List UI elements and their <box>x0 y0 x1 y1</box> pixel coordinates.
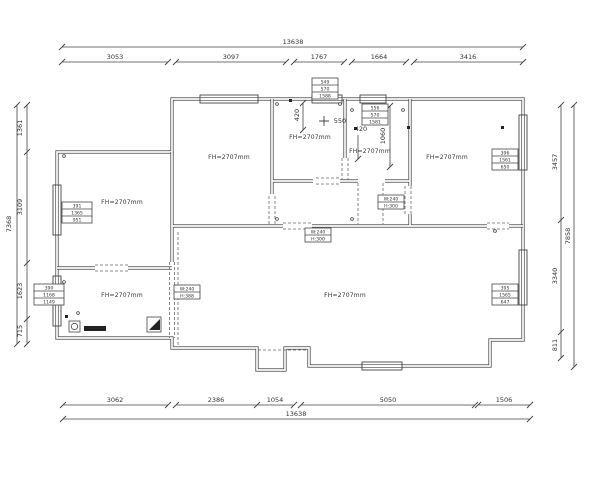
room-label-top-left: FH=2707mm <box>208 154 250 161</box>
dimension-bottom: 3062 2386 1054 5050 1506 13638 <box>60 396 533 422</box>
dim-seg: 2386 <box>208 396 225 404</box>
dim-box-row: 390 <box>45 286 54 292</box>
dim-seg: 1664 <box>371 53 388 61</box>
beam-box-row: W:240 <box>311 230 326 236</box>
dim-seg: 5050 <box>380 396 397 404</box>
window-icon <box>362 362 402 370</box>
dim-box-stack: 390 1168 1149 <box>34 284 64 306</box>
dim-seg: 715 <box>16 325 24 337</box>
inline-dim-1060: 1060 <box>379 128 387 145</box>
dim-box-row: 1149 <box>43 300 55 306</box>
room-label-bottom-left: FH=2707mm <box>101 292 143 299</box>
dimension-right: 3457 3340 811 7858 <box>551 102 577 370</box>
dim-box-row: 1561 <box>499 158 511 164</box>
dim-seg: 3109 <box>16 199 24 216</box>
beam-box: W:240 H:388 <box>174 285 200 300</box>
room-label-top-middle: FH=2707mm <box>289 134 331 141</box>
room-label-middle-small: FH=2707mm <box>349 148 391 155</box>
dim-total-left: 7368 <box>5 216 13 233</box>
window-icon <box>519 250 527 305</box>
dim-box-row: 556 <box>371 106 380 112</box>
dim-box-row: 570 <box>371 113 380 119</box>
dim-box-row: 650 <box>501 165 510 171</box>
dim-box-row: 1168 <box>43 293 55 299</box>
dim-box-stack: 556 570 1581 <box>362 104 388 126</box>
interior-walls <box>57 99 523 268</box>
beam-box: W:240 H:300 <box>305 228 331 243</box>
dim-box-row: 395 <box>501 286 510 292</box>
dim-seg: 1054 <box>267 396 284 404</box>
floor-plan-canvas: 13638 3053 3097 1767 1664 3416 3062 2386… <box>0 0 600 480</box>
washing-machine-icon <box>69 321 80 332</box>
beam-box-row: W:240 <box>180 287 195 293</box>
dimension-top: 13638 3053 3097 1767 1664 3416 <box>59 38 526 65</box>
dim-box-row: 951 <box>73 218 82 224</box>
room-label-living: FH=2707mm <box>324 292 366 299</box>
dim-total-right: 7858 <box>564 228 572 245</box>
window-icon <box>53 185 61 235</box>
beam-box-row: H:300 <box>384 204 398 210</box>
dim-box-stack: 391 1365 951 <box>62 202 92 224</box>
beam-box: W:240 H:300 <box>378 195 404 210</box>
interior-walls-core <box>57 99 523 268</box>
dim-box-stack: 395 1565 647 <box>492 284 518 306</box>
floor-plan-drawing: 13638 3053 3097 1767 1664 3416 3062 2386… <box>0 0 600 480</box>
column-markers <box>65 99 504 318</box>
dim-seg: 3457 <box>551 154 559 171</box>
dim-total-top: 13638 <box>283 38 304 46</box>
window-icon <box>200 95 258 103</box>
room-label-left: FH=2707mm <box>101 199 143 206</box>
door-leaf-icon <box>147 317 161 332</box>
dim-box-row: 570 <box>321 87 330 93</box>
dim-box-row: 1581 <box>369 120 381 126</box>
window-icon <box>360 95 386 103</box>
dim-seg: 3340 <box>551 268 559 285</box>
dim-seg: 3097 <box>223 53 240 61</box>
beam-box-row: W:240 <box>384 197 399 203</box>
dim-seg: 3062 <box>107 396 124 404</box>
dim-seg: 811 <box>551 339 559 351</box>
beam-box-row: H:300 <box>311 237 325 243</box>
window-icon <box>519 115 527 170</box>
inline-dim-420-a: 420 <box>293 109 301 121</box>
dim-seg: 3053 <box>107 53 124 61</box>
dim-box-stack: 396 1561 650 <box>492 149 518 171</box>
dim-box-stack: 549 570 1588 <box>312 78 338 100</box>
room-label-top-right: FH=2707mm <box>426 154 468 161</box>
dim-box-row: 647 <box>501 300 510 306</box>
dim-seg: 1767 <box>311 53 328 61</box>
inline-dim-550: 550 <box>334 117 346 125</box>
dim-box-row: 396 <box>501 151 510 157</box>
tick-marks <box>14 102 30 347</box>
dim-box-row: 1588 <box>319 94 331 100</box>
dim-box-row: 1365 <box>71 211 83 217</box>
dim-total-bottom: 13638 <box>286 410 307 418</box>
beam-box-row: H:388 <box>180 294 194 300</box>
dim-seg: 1506 <box>496 396 513 404</box>
dimension-left: 7368 1361 3109 1623 715 <box>5 102 30 347</box>
level-cross-icon <box>319 116 329 126</box>
dim-seg: 1361 <box>16 120 24 137</box>
dim-box-row: 391 <box>73 204 82 210</box>
dim-box-row: 549 <box>321 80 330 86</box>
socket-symbols <box>63 103 497 315</box>
counter-icon <box>84 326 106 331</box>
dim-box-row: 1565 <box>499 293 511 299</box>
dim-seg: 3416 <box>460 53 477 61</box>
dim-seg: 1623 <box>16 283 24 300</box>
room-labels: FH=2707mm FH=2707mm FH=2707mm FH=2707mm … <box>101 134 468 299</box>
